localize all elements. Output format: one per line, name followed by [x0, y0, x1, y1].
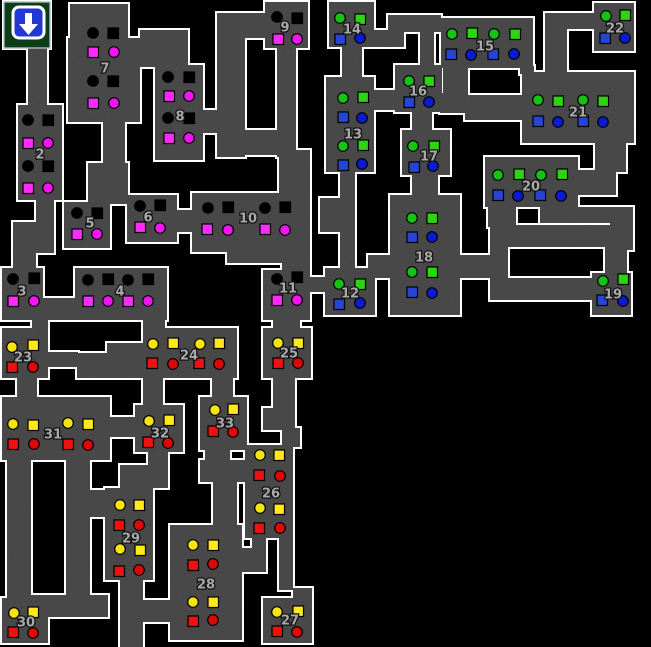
room-label-16: 16 [409, 85, 427, 100]
marker-ms [83, 296, 94, 307]
room-label-33: 33 [216, 417, 234, 432]
marker-bs [143, 274, 154, 285]
marker-ms [273, 34, 284, 45]
marker-rs [114, 520, 125, 531]
marker-gc [407, 267, 418, 278]
room-label-26: 26 [262, 487, 280, 502]
room-label-11: 11 [279, 282, 297, 297]
marker-rs [8, 439, 19, 450]
room-label-12: 12 [341, 287, 359, 302]
room-label-15: 15 [476, 40, 494, 55]
marker-Bs [493, 190, 504, 201]
marker-bc [88, 76, 99, 87]
marker-bc [260, 203, 271, 214]
marker-Bs [533, 116, 544, 127]
marker-bc [163, 113, 174, 124]
marker-Bc [556, 191, 567, 202]
marker-bc [8, 274, 19, 285]
marker-mc [184, 91, 195, 102]
marker-Bc [427, 232, 438, 243]
marker-ys [228, 404, 239, 415]
marker-mc [223, 225, 234, 236]
marker-Bc [427, 288, 438, 299]
marker-Bs [338, 112, 349, 123]
marker-Bs [407, 287, 418, 298]
marker-bc [83, 275, 94, 286]
marker-rs [188, 560, 199, 571]
marker-gs [427, 267, 438, 278]
marker-mc [109, 98, 120, 109]
marker-mc [103, 296, 114, 307]
marker-gs [553, 96, 564, 107]
marker-yc [148, 339, 159, 350]
marker-bc [203, 203, 214, 214]
marker-rs [254, 470, 265, 481]
marker-ms [23, 183, 34, 194]
marker-bs [184, 113, 195, 124]
marker-bc [23, 161, 34, 172]
marker-bc [23, 115, 34, 126]
marker-Bc [598, 117, 609, 128]
room-label-13: 13 [344, 128, 362, 143]
room-label-31: 31 [44, 428, 62, 443]
marker-rc [134, 565, 145, 576]
room-label-10: 10 [239, 212, 257, 227]
marker-mc [43, 183, 54, 194]
marker-ys [208, 540, 219, 551]
marker-bs [108, 76, 119, 87]
marker-bc [163, 72, 174, 83]
dungeon-map-stage: 2345678910111213141516171819202122232425… [0, 0, 651, 647]
room-label-23: 23 [14, 351, 32, 366]
room-label-5: 5 [85, 217, 94, 232]
marker-yc [188, 540, 199, 551]
marker-ys [208, 597, 219, 608]
marker-ms [202, 224, 213, 235]
room-label-18: 18 [415, 251, 433, 266]
marker-ms [272, 295, 283, 306]
marker-Bs [409, 162, 420, 173]
marker-rc [275, 471, 286, 482]
marker-gc [407, 213, 418, 224]
marker-bs [292, 13, 303, 24]
marker-gc [598, 276, 609, 287]
marker-ys [274, 504, 285, 515]
room-label-17: 17 [420, 150, 438, 165]
marker-yc [188, 597, 199, 608]
marker-yc [8, 419, 19, 430]
marker-ys [135, 545, 146, 556]
marker-gc [447, 29, 458, 40]
marker-gc [408, 141, 419, 152]
room-label-6: 6 [143, 211, 152, 226]
marker-Bc [357, 113, 368, 124]
marker-rc [214, 359, 225, 370]
marker-gs [598, 96, 609, 107]
marker-rs [147, 358, 158, 369]
marker-gs [620, 10, 631, 21]
room-label-30: 30 [17, 616, 35, 631]
room-label-21: 21 [569, 106, 587, 121]
room-label-9: 9 [280, 21, 289, 36]
marker-rs [63, 439, 74, 450]
room-label-24: 24 [180, 349, 198, 364]
marker-gc [493, 170, 504, 181]
marker-bs [223, 202, 234, 213]
room-label-19: 19 [604, 288, 622, 303]
room-label-20: 20 [522, 180, 540, 195]
marker-gc [578, 95, 589, 106]
marker-gs [557, 169, 568, 180]
marker-ms [88, 47, 99, 58]
marker-mc [292, 34, 303, 45]
marker-gc [601, 11, 612, 22]
marker-mc [143, 296, 154, 307]
marker-ys [214, 338, 225, 349]
marker-rs [188, 616, 199, 627]
room-label-22: 22 [606, 22, 624, 37]
marker-ys [134, 500, 145, 511]
marker-rc [208, 559, 219, 570]
marker-ms [23, 138, 34, 149]
marker-gc [489, 29, 500, 40]
marker-yc [115, 500, 126, 511]
marker-bs [155, 200, 166, 211]
room-label-27: 27 [281, 614, 299, 629]
marker-ms [164, 91, 175, 102]
marker-Bs [338, 160, 349, 171]
marker-bs [280, 202, 291, 213]
room-label-29: 29 [122, 532, 140, 547]
marker-ys [168, 338, 179, 349]
marker-Bs [446, 49, 457, 60]
marker-gs [618, 274, 629, 285]
room-label-8: 8 [175, 110, 184, 125]
marker-bc [88, 28, 99, 39]
marker-ys [28, 340, 39, 351]
marker-rc [275, 523, 286, 534]
marker-bc [72, 208, 83, 219]
room-label-2: 2 [35, 148, 44, 163]
marker-ys [274, 450, 285, 461]
marker-gs [510, 29, 521, 40]
marker-Bc [509, 49, 520, 60]
marker-bs [29, 273, 40, 284]
room-label-4: 4 [115, 285, 124, 300]
marker-bs [103, 274, 114, 285]
entrance-down-arrow-icon [13, 7, 44, 38]
marker-ys [28, 420, 39, 431]
marker-Bc [553, 117, 564, 128]
marker-rc [208, 615, 219, 626]
marker-rs [114, 566, 125, 577]
room-label-28: 28 [197, 578, 215, 593]
marker-Bc [466, 50, 477, 61]
marker-yc [255, 503, 266, 514]
marker-rc [168, 359, 179, 370]
marker-mc [109, 47, 120, 58]
marker-Bs [407, 232, 418, 243]
marker-Bc [357, 159, 368, 170]
room-label-3: 3 [17, 285, 26, 300]
marker-bs [184, 72, 195, 83]
marker-ys [83, 419, 94, 430]
marker-mc [184, 133, 195, 144]
marker-bs [43, 161, 54, 172]
marker-mc [155, 223, 166, 234]
marker-ms [164, 133, 175, 144]
room-label-32: 32 [151, 427, 169, 442]
marker-mc [29, 296, 40, 307]
marker-gc [338, 93, 349, 104]
marker-yc [210, 405, 221, 416]
marker-ms [88, 98, 99, 109]
dungeon-map: 2345678910111213141516171819202122232425… [0, 0, 651, 647]
marker-yc [144, 416, 155, 427]
marker-rs [254, 523, 265, 534]
marker-mc [280, 225, 291, 236]
room-label-14: 14 [343, 23, 361, 38]
marker-rc [134, 520, 145, 531]
marker-gs [358, 92, 369, 103]
marker-ms [72, 229, 83, 240]
marker-yc [255, 450, 266, 461]
marker-ms [260, 224, 271, 235]
marker-gc [533, 95, 544, 106]
marker-gs [514, 169, 525, 180]
marker-rc [29, 439, 40, 450]
marker-ys [164, 415, 175, 426]
marker-yc [63, 418, 74, 429]
marker-gs [427, 213, 438, 224]
marker-gs [467, 28, 478, 39]
room-label-7: 7 [100, 62, 109, 77]
room-label-25: 25 [280, 347, 298, 362]
marker-rc [83, 440, 94, 451]
marker-ms [123, 296, 134, 307]
marker-bs [108, 28, 119, 39]
marker-bs [43, 115, 54, 126]
